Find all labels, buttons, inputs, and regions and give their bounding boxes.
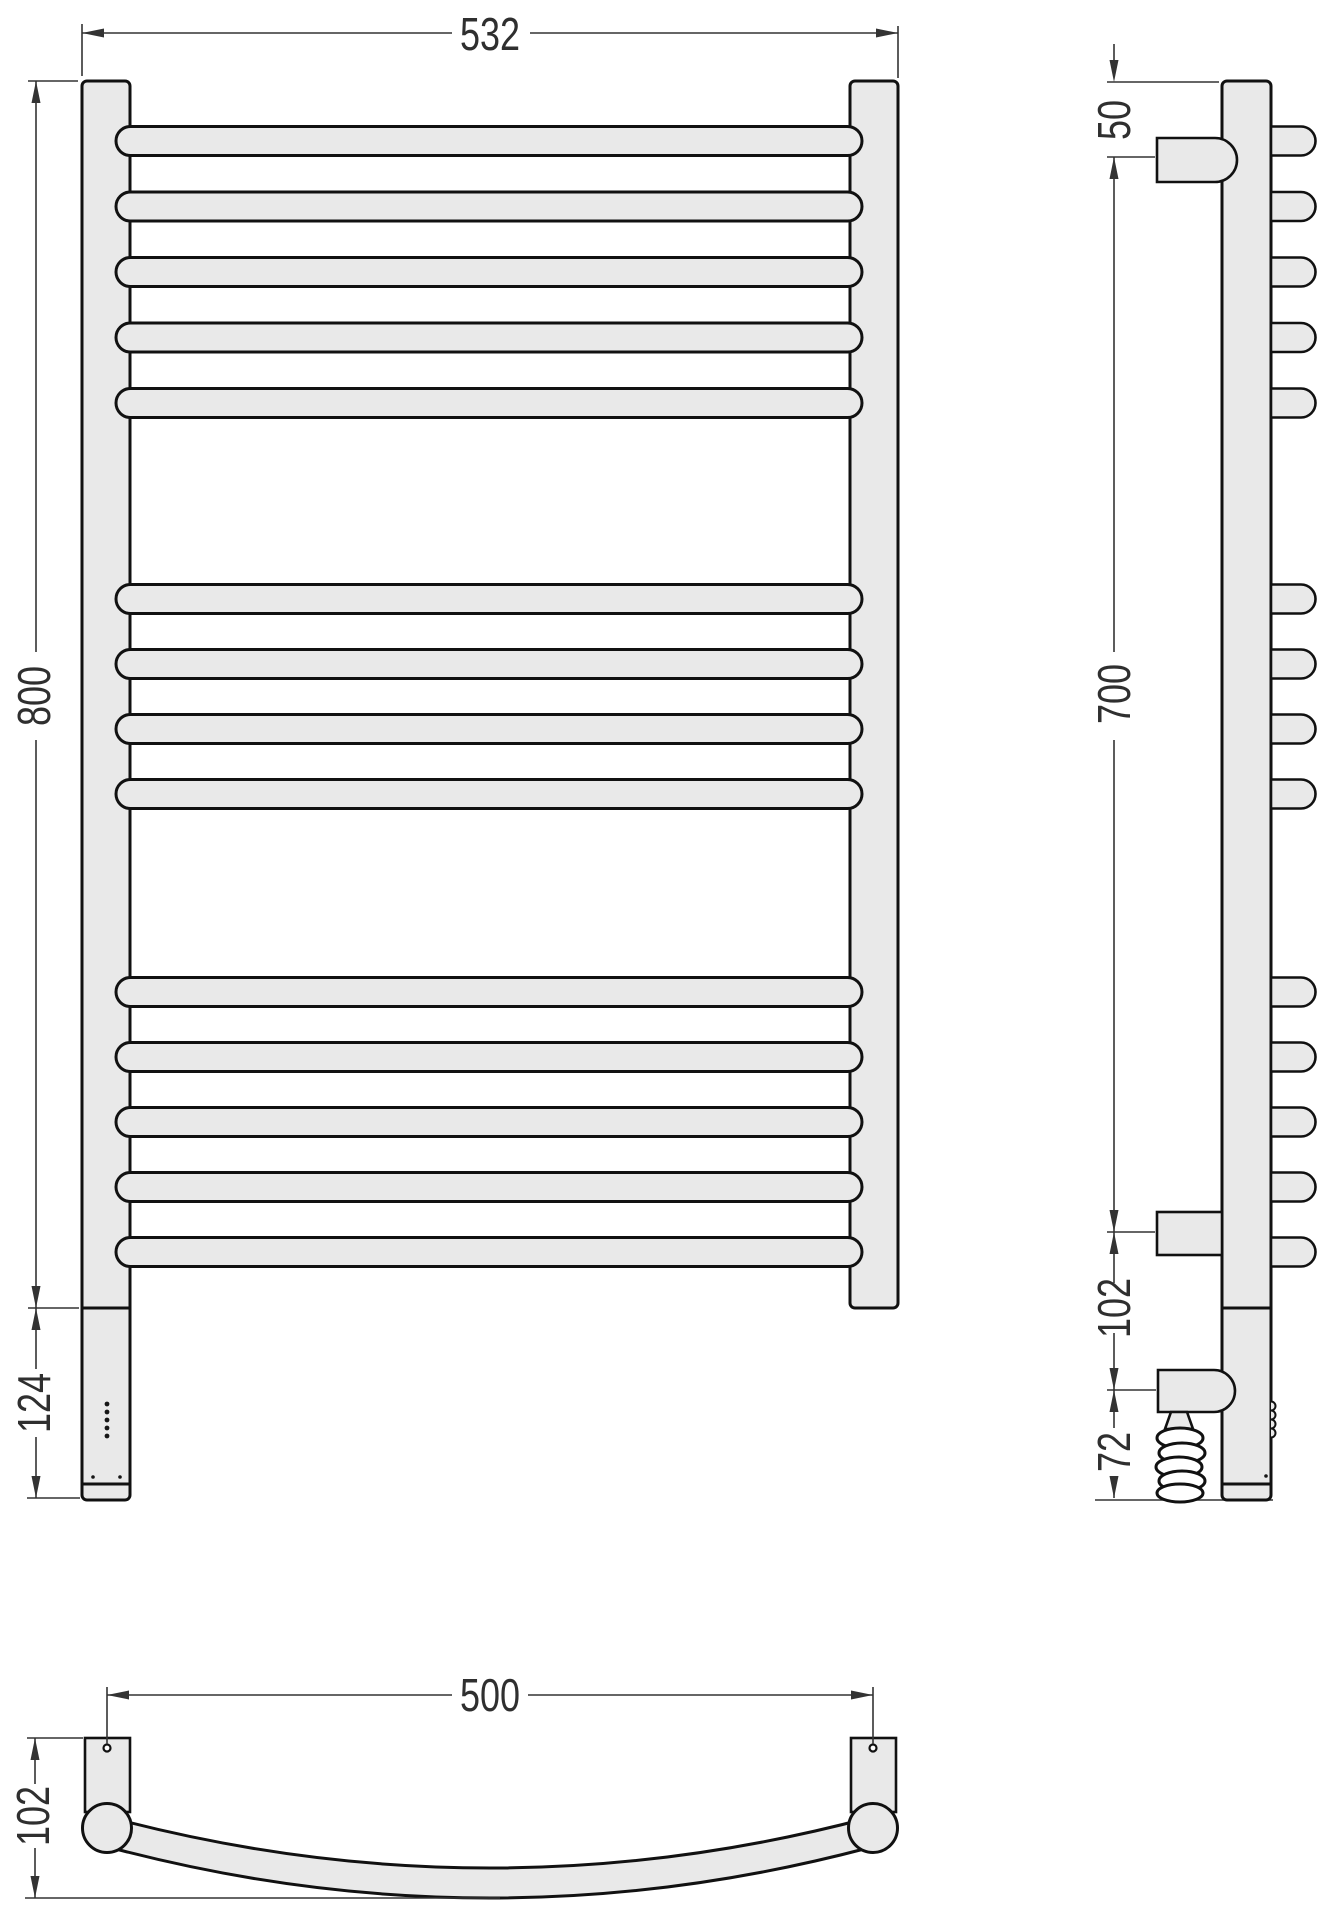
screw-dot <box>1264 1474 1268 1478</box>
rail-end-tab <box>1271 323 1316 352</box>
dim-label-800: 800 <box>8 666 60 726</box>
rail <box>116 585 862 614</box>
dim-label-700: 700 <box>1088 664 1140 724</box>
led-dot <box>105 1402 110 1407</box>
rail-end-tab <box>1271 127 1316 156</box>
rail <box>116 978 862 1007</box>
rail <box>116 127 862 156</box>
led-dot <box>105 1418 110 1423</box>
dim-label-532: 532 <box>460 8 520 60</box>
rail-end-tab <box>1271 1043 1316 1072</box>
screw-dot <box>118 1475 122 1479</box>
led-bump <box>1271 1429 1276 1438</box>
rail-end-tab <box>1271 650 1316 679</box>
right-mount-hole <box>870 1745 877 1752</box>
led-bump <box>1271 1420 1276 1429</box>
right-post-cap <box>849 1804 898 1853</box>
dim-label-124: 124 <box>8 1373 60 1433</box>
lower-wall-bracket <box>1157 1212 1222 1255</box>
left-mount-hole <box>104 1745 111 1752</box>
rail <box>116 650 862 679</box>
rail-end-tab <box>1271 1238 1316 1267</box>
rail <box>116 1043 862 1072</box>
dim-label-72: 72 <box>1088 1432 1140 1472</box>
dim-label-102-side: 102 <box>1088 1278 1140 1338</box>
cable-neck <box>1165 1412 1193 1429</box>
led-dot <box>105 1434 110 1439</box>
led-bump <box>1271 1411 1276 1420</box>
rail <box>116 1238 862 1267</box>
coil-loop <box>1157 1484 1203 1502</box>
dim-label-500: 500 <box>460 1669 520 1721</box>
heater-housing <box>1158 1370 1235 1412</box>
rail-end-tab <box>1271 258 1316 287</box>
upper-wall-bracket <box>1157 138 1237 182</box>
rail-end-tab <box>1271 192 1316 221</box>
rail <box>116 258 862 287</box>
side-post-bar <box>1222 81 1271 1500</box>
rail-end-tab <box>1271 585 1316 614</box>
rail <box>116 323 862 352</box>
led-dot <box>105 1410 110 1415</box>
rail <box>116 780 862 809</box>
rail <box>116 1173 862 1202</box>
led-bump <box>1271 1402 1276 1411</box>
led-dot <box>105 1426 110 1431</box>
technical-drawing-page: 532 800 124 <box>0 0 1337 1920</box>
technical-drawing-canvas: 532 800 124 <box>0 0 1337 1920</box>
rail <box>116 1108 862 1137</box>
rail-end-tab <box>1271 1108 1316 1137</box>
rail-end-tab <box>1271 780 1316 809</box>
dim-label-102-top: 102 <box>7 1786 59 1846</box>
left-post-cap <box>83 1804 132 1853</box>
rail-end-tab <box>1271 715 1316 744</box>
rail-end-tab <box>1271 1173 1316 1202</box>
rail-end-tab <box>1271 978 1316 1007</box>
rail <box>116 715 862 744</box>
rail-end-tab <box>1271 389 1316 418</box>
rail <box>116 389 862 418</box>
rail <box>116 192 862 221</box>
screw-dot <box>91 1475 95 1479</box>
dim-label-50: 50 <box>1088 100 1140 140</box>
